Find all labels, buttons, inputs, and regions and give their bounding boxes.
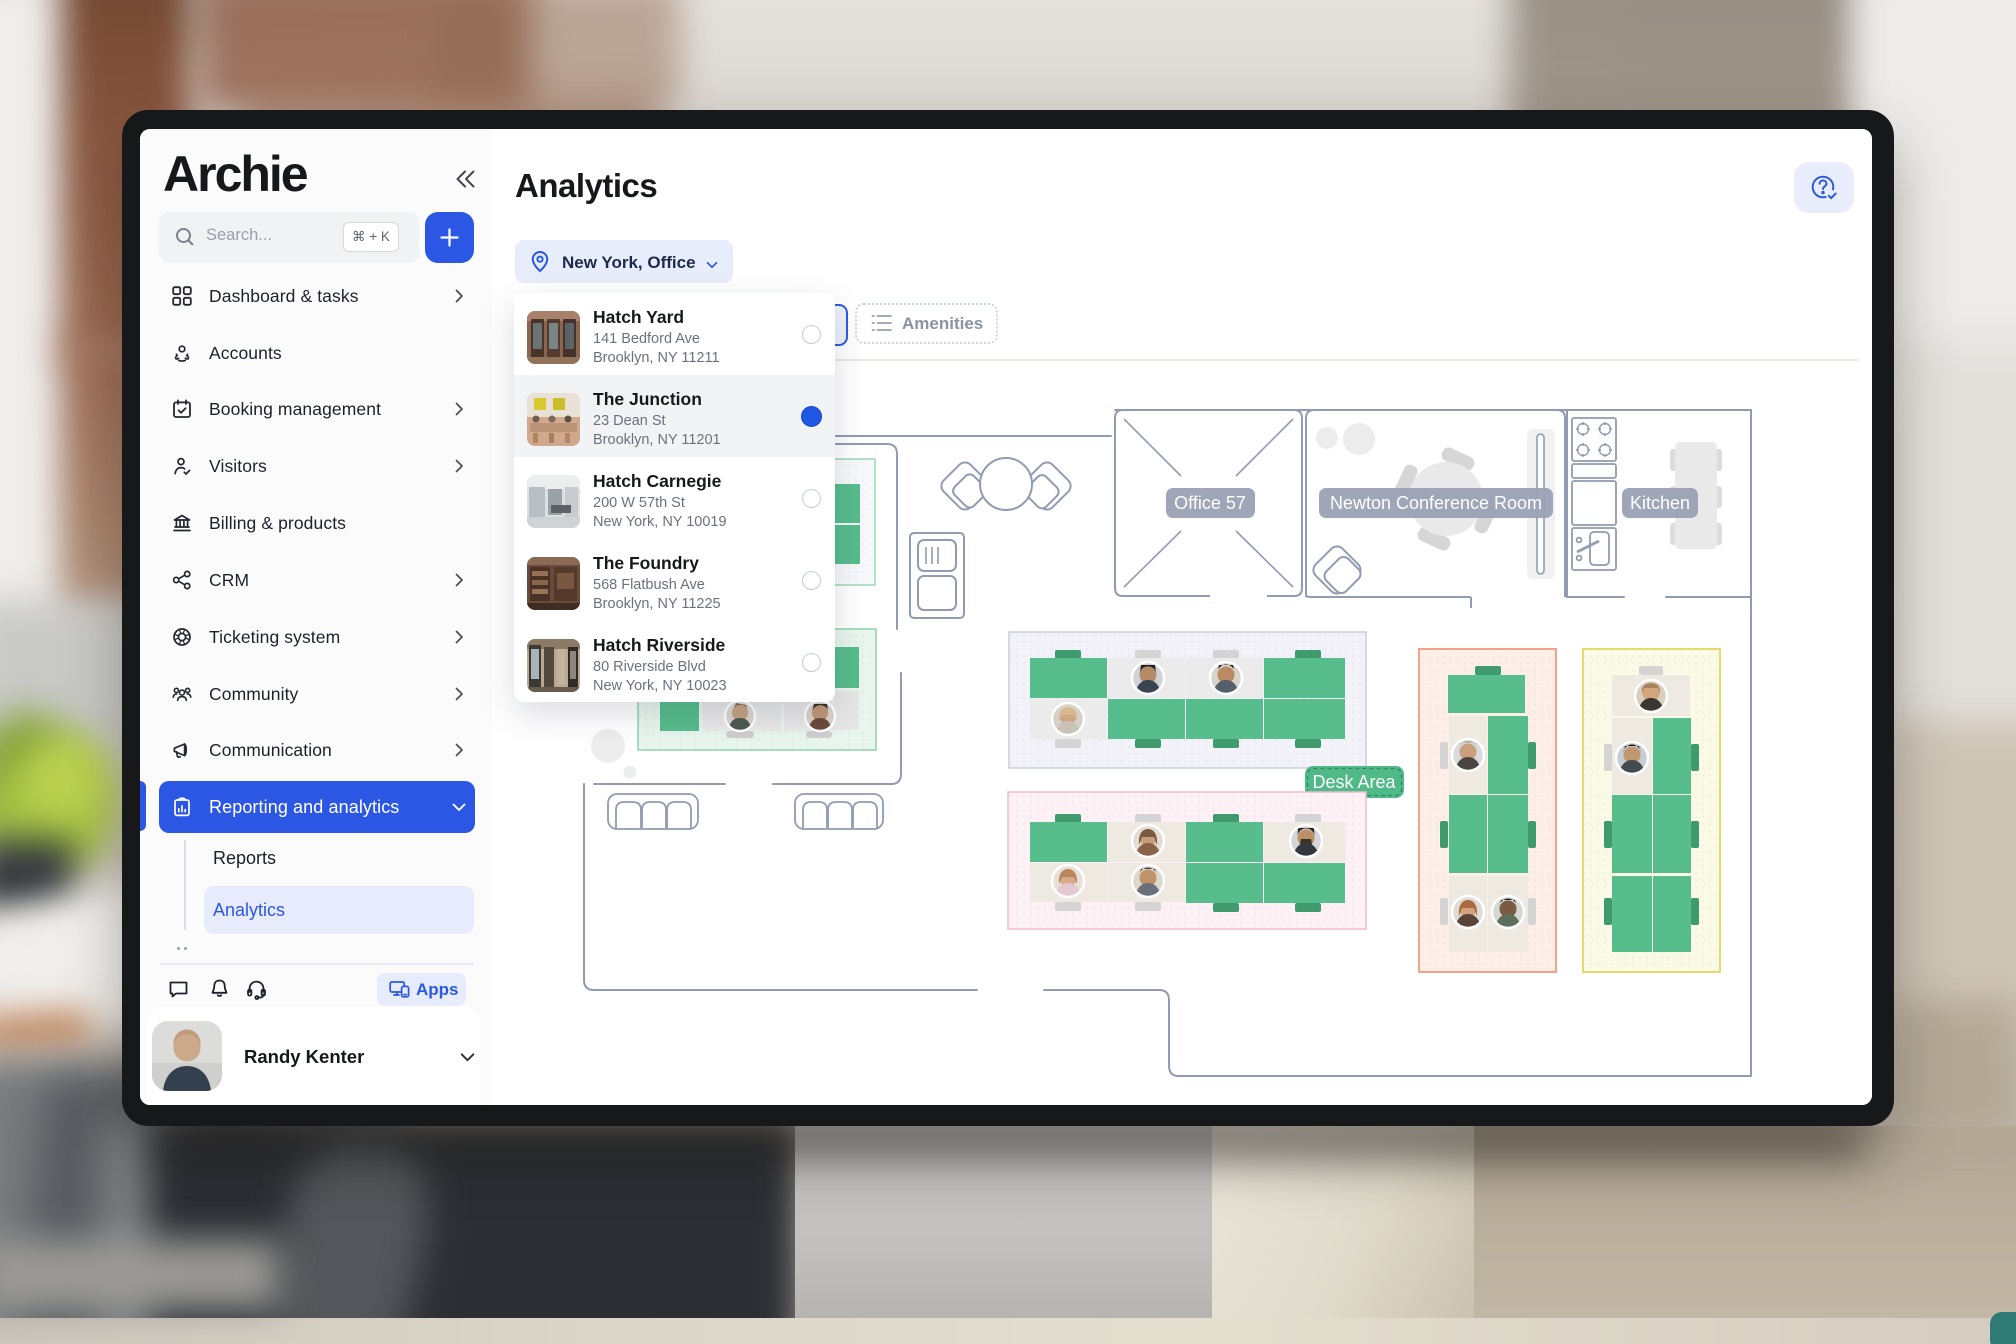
svg-text:Office 57: Office 57 [1174,493,1246,513]
svg-text:Newton Conference Room: Newton Conference Room [1330,493,1542,513]
svg-text:Kitchen: Kitchen [1630,493,1690,513]
svg-text:Desk Area: Desk Area [1312,772,1396,792]
